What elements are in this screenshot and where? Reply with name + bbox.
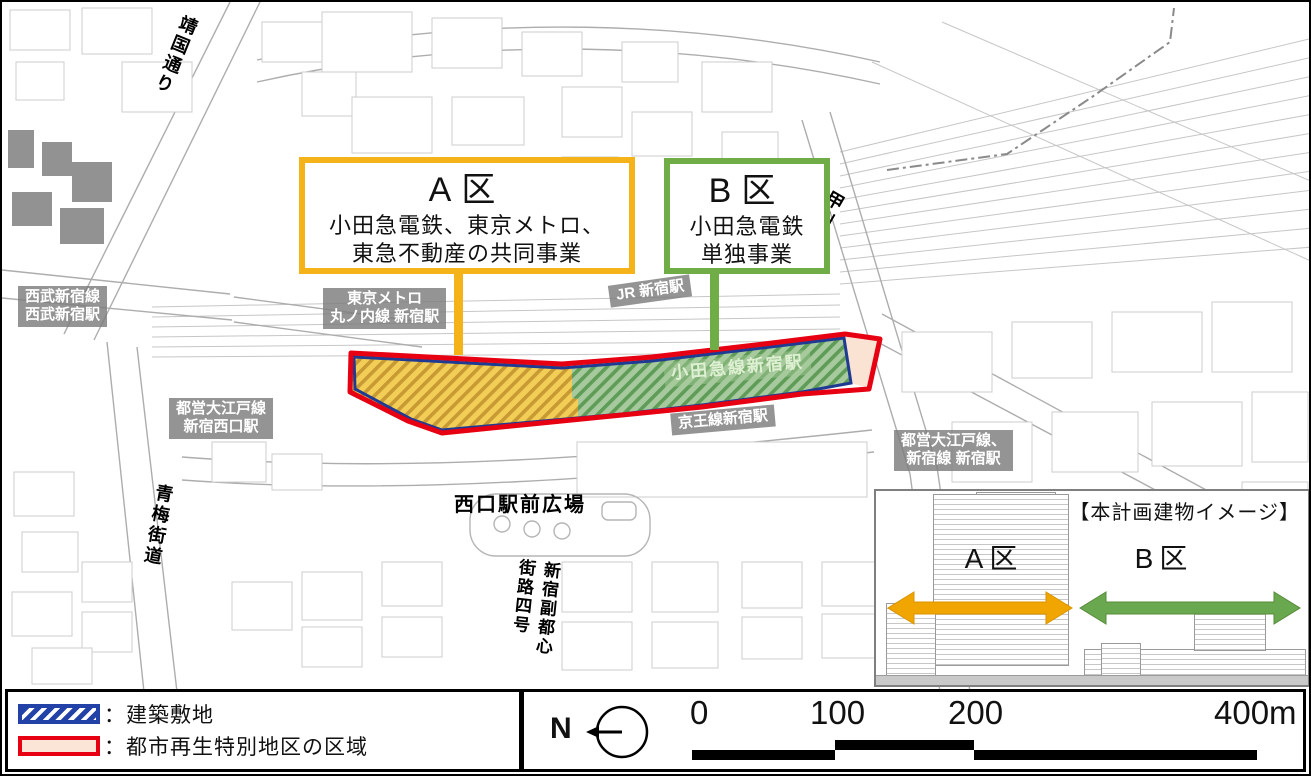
scale-bar-segment-1 — [692, 750, 835, 760]
callout-zone-b: B区 小田急電鉄 単独事業 — [664, 158, 830, 274]
scale-bar-panel: N 0 100 200 400m — [521, 689, 1306, 772]
station-label-jr: JR 新宿駅 — [608, 274, 693, 308]
callout-b-title: B区 — [678, 170, 816, 213]
inset-low-building-center — [1101, 643, 1141, 679]
callout-zone-a: A区 小田急電鉄、東京メトロ、 東急不動産の共同事業 — [299, 157, 635, 274]
station-label-metro-marunouchi: 東京メトロ 丸ノ内線 新宿駅 — [323, 288, 446, 329]
scale-bar-segment-3 — [974, 750, 1257, 760]
legend-building-site-label: ：建築敷地 — [104, 699, 214, 729]
district-outline — [350, 334, 880, 433]
station-label-oedo-shinjuku: 都営大江戸線、 新宿線 新宿駅 — [894, 430, 1013, 471]
building-image-inset: 【本計画建物イメージ】 A区 B区 — [874, 489, 1310, 687]
scale-bar-segment-2 — [835, 740, 974, 750]
north-arrow-icon — [582, 700, 654, 764]
scale-tick-200: 200 — [948, 694, 1003, 732]
inset-title: 【本計画建物イメージ】 — [1069, 496, 1300, 525]
callout-b-line1: 小田急電鉄 — [678, 213, 816, 242]
station-label-oedo-west: 都営大江戸線 新宿西口駅 — [169, 398, 273, 439]
station-label-seibu: 西武新宿線 西武新宿駅 — [18, 286, 107, 327]
road-label-ome: 青梅街道 — [138, 482, 178, 569]
zone-b-extent-arrow — [1080, 592, 1300, 624]
district-extra-area — [844, 336, 879, 388]
road-label-fukutoshin: 新宿副都心 街路四号 — [504, 557, 564, 657]
zone-a-extent-arrow — [888, 592, 1072, 624]
callout-a-leader — [454, 273, 463, 355]
site-map-figure: 靖国通り 甲州街道 青梅街道 新宿副都心 街路四号 西口駅前広場 西武新宿線 西… — [0, 0, 1311, 776]
scale-tick-0: 0 — [690, 694, 708, 732]
inset-zone-b-label: B区 — [1104, 537, 1224, 577]
callout-a-title: A区 — [313, 169, 621, 212]
callout-a-line1: 小田急電鉄、東京メトロ、 — [313, 212, 621, 241]
inset-zone-a-label: A区 — [934, 537, 1054, 577]
station-label-odakyu: 小田急線新宿駅 — [663, 350, 812, 387]
legend-district-label: ：都市再生特別地区の区域 — [104, 731, 368, 761]
inset-tower-a — [933, 494, 1069, 666]
station-label-keio: 京王線新宿駅 — [670, 405, 776, 436]
inset-ground-line — [876, 675, 1308, 687]
callout-b-line2: 単独事業 — [678, 241, 816, 270]
inset-extent-arrows — [876, 585, 1308, 631]
legend-building-site-swatch — [18, 704, 100, 724]
north-label: N — [550, 712, 572, 746]
scale-tick-400: 400m — [1214, 694, 1297, 732]
road-label-yasukuni: 靖国通り — [147, 11, 203, 99]
callout-b-leader — [710, 274, 719, 350]
legend: ：建築敷地 ：都市再生特別地区の区域 — [5, 689, 522, 772]
scale-tick-100: 100 — [810, 694, 865, 732]
callout-a-line2: 東急不動産の共同事業 — [313, 240, 621, 269]
west-plaza-label: 西口駅前広場 — [454, 488, 586, 517]
zone-a-area — [352, 354, 578, 432]
legend-district-swatch — [18, 736, 100, 756]
